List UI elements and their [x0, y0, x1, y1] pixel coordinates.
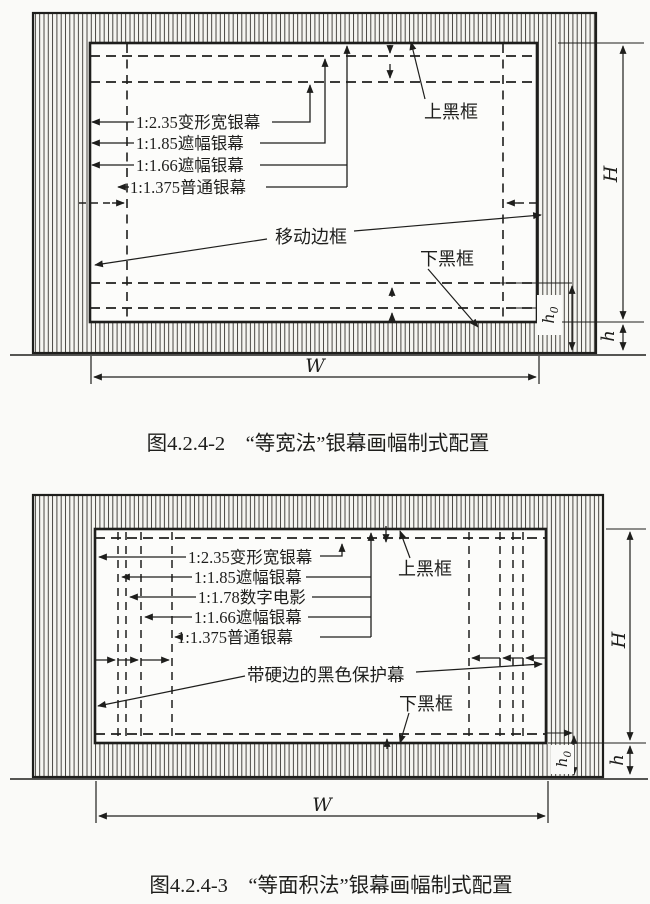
bottom-black-frame-label: 下黑框	[399, 694, 453, 714]
dim-h0-sub: 0	[548, 306, 561, 313]
format-label-1-375: 1:1.375普通银幕	[177, 628, 293, 647]
format-label-2-35: 1:2.35变形宽银幕	[136, 113, 260, 132]
format-label-1-375: 1:1.375普通银幕	[130, 178, 246, 197]
figure-caption-equal-area: 图4.2.4-3 “等面积法”银幕画幅制式配置	[149, 874, 512, 897]
scanned-standard-page: 1:2.35变形宽银幕 1:1.85遮幅银幕 1:1.66遮幅银幕 1:1.37…	[0, 0, 650, 899]
dim-W-label: W	[312, 794, 333, 816]
dim-H-label: H	[600, 165, 622, 183]
format-label-1-66: 1:1.66遮幅银幕	[194, 608, 302, 627]
top-black-frame-label: 上黑框	[398, 559, 452, 579]
figure-equal-area-diagram: 1:2.35变形宽银幕 1:1.85遮幅银幕 1:1.78数字电影 1:1.66…	[10, 495, 648, 897]
dim-h-label: h	[607, 754, 628, 766]
dim-W-label: W	[305, 355, 326, 377]
protective-screen-label: 带硬边的黑色保护幕	[247, 665, 405, 685]
dim-H-label: H	[608, 631, 630, 649]
dim-h0-main: h	[539, 313, 558, 323]
figure-caption-equal-width: 图4.2.4-2 “等宽法”银幕画幅制式配置	[147, 432, 490, 455]
top-black-frame-label: 上黑框	[424, 102, 478, 122]
format-label-1-66: 1:1.66遮幅银幕	[136, 156, 244, 175]
figure-equal-width-diagram: 1:2.35变形宽银幕 1:1.85遮幅银幕 1:1.66遮幅银幕 1:1.37…	[10, 13, 646, 455]
screen-opening	[95, 529, 546, 743]
dim-h0-sub: 0	[562, 751, 574, 758]
format-label-1-85: 1:1.85遮幅银幕	[194, 568, 302, 587]
format-label-2-35: 1:2.35变形宽银幕	[188, 548, 312, 567]
format-label-1-78: 1:1.78数字电影	[198, 588, 306, 607]
dim-h0-main: h	[553, 758, 571, 768]
figures-canvas: 1:2.35变形宽银幕 1:1.85遮幅银幕 1:1.66遮幅银幕 1:1.37…	[0, 0, 650, 899]
format-label-1-85: 1:1.85遮幅银幕	[136, 134, 244, 153]
bottom-black-frame-label: 下黑框	[420, 249, 474, 269]
movable-edge-label: 移动边框	[275, 227, 347, 247]
dim-h-label: h	[598, 330, 619, 342]
